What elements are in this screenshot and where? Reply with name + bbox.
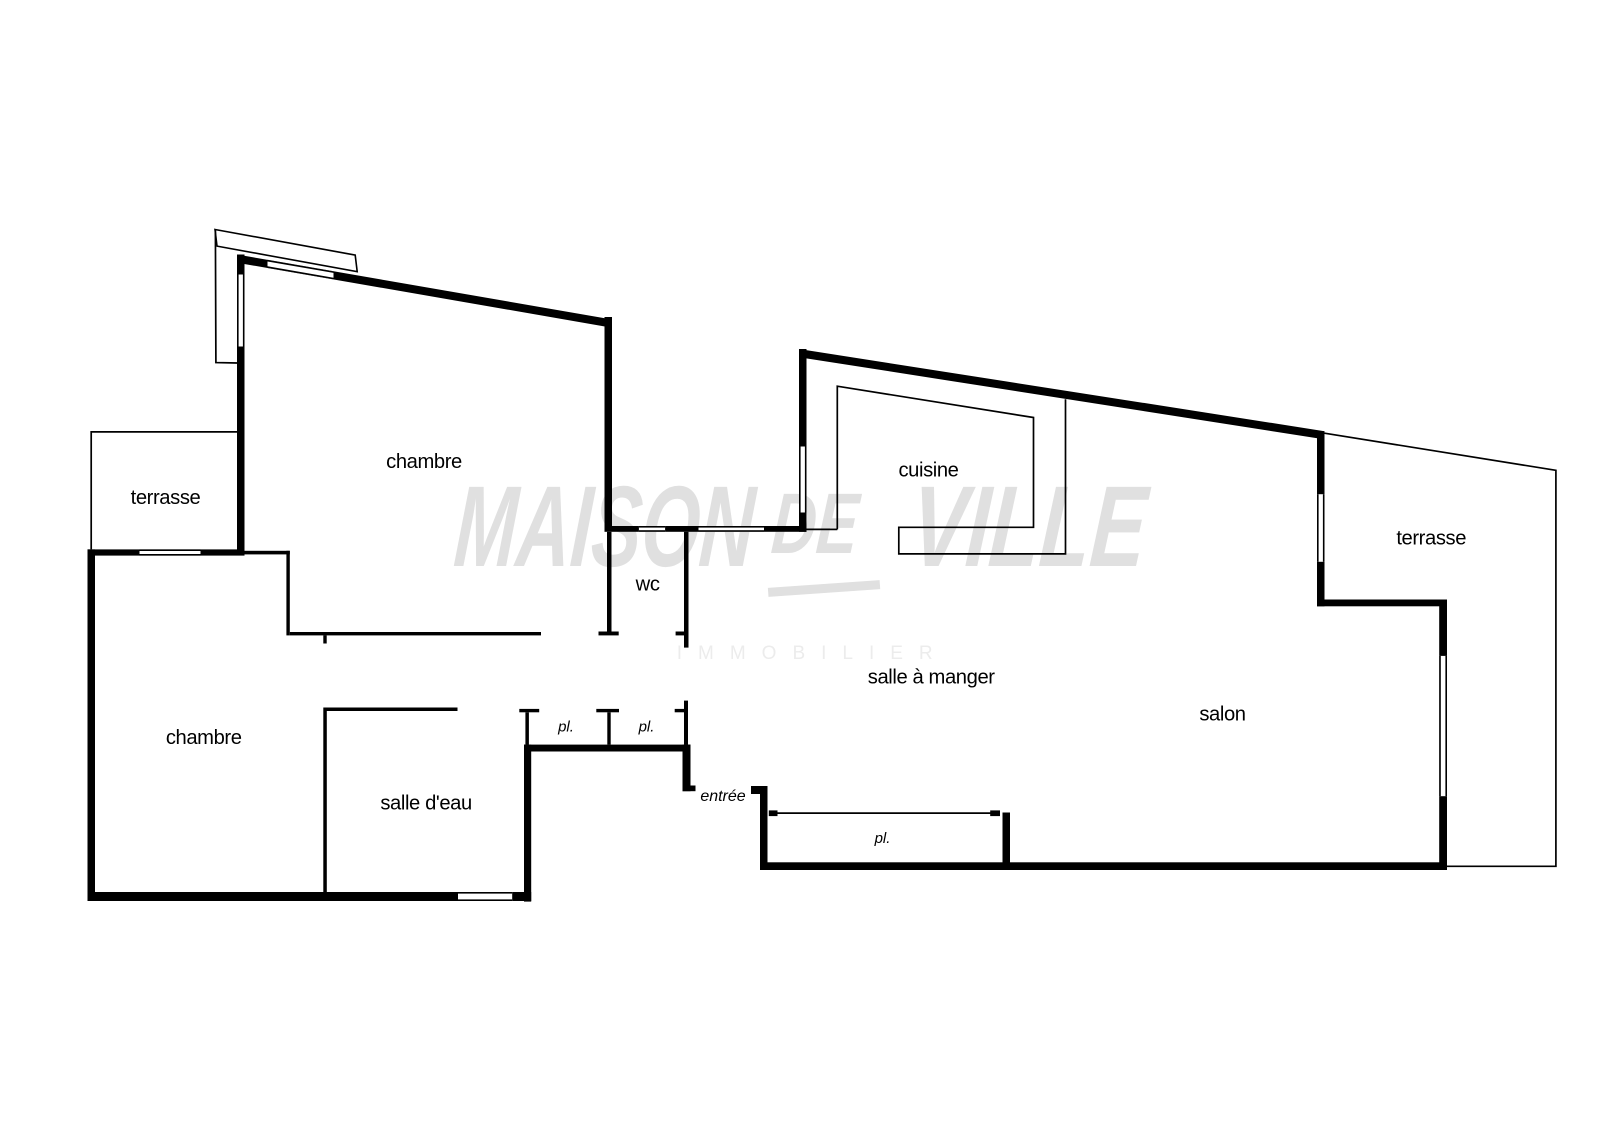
svg-text:pl.: pl. (638, 719, 655, 736)
svg-text:salle d'eau: salle d'eau (380, 793, 472, 815)
svg-text:terrasse: terrasse (1396, 528, 1466, 550)
svg-text:salle à manger: salle à manger (868, 667, 995, 689)
svg-text:salon: salon (1199, 704, 1245, 726)
svg-text:cuisine: cuisine (898, 459, 958, 481)
svg-text:pl.: pl. (874, 830, 891, 847)
svg-text:chambre: chambre (166, 727, 242, 749)
svg-text:terrasse: terrasse (131, 487, 201, 509)
svg-text:DE: DE (769, 475, 864, 571)
svg-text:entrée: entrée (700, 788, 745, 805)
svg-text:chambre: chambre (386, 451, 462, 473)
svg-text:wc: wc (635, 573, 660, 595)
svg-text:pl.: pl. (557, 719, 574, 736)
svg-text:IMMOBILIER: IMMOBILIER (677, 643, 949, 664)
